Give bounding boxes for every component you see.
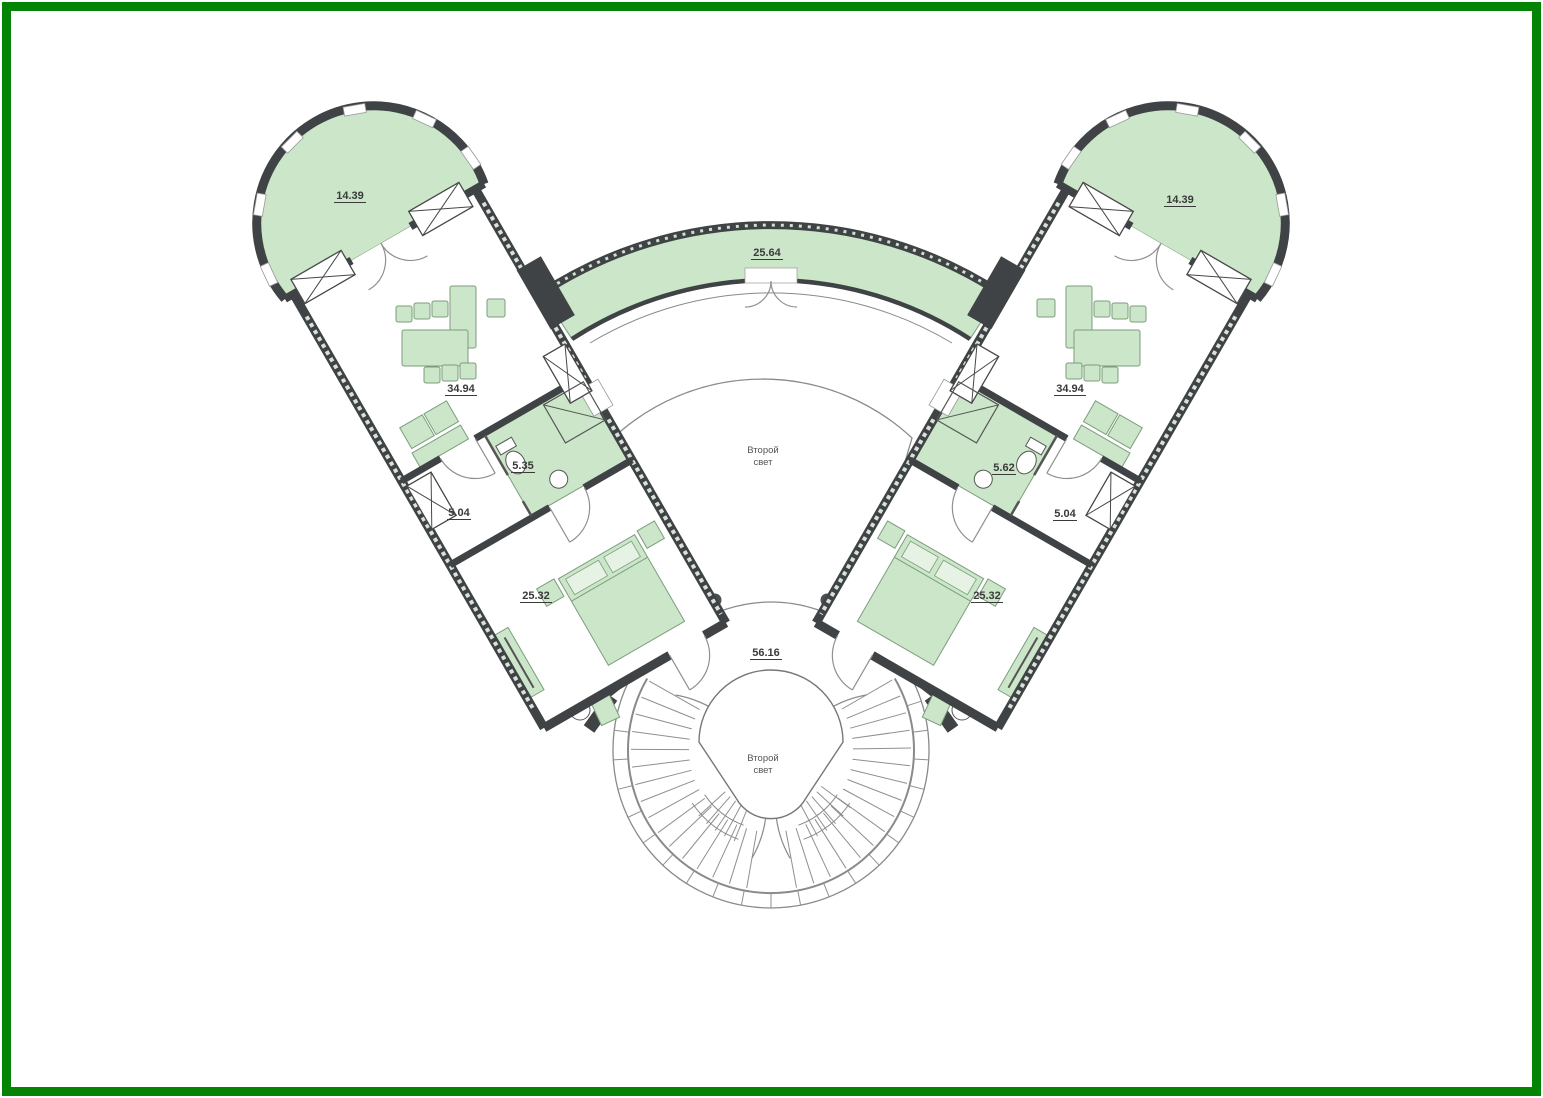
dining-table [402, 330, 468, 366]
area-label-bath-left: 5.35 [512, 460, 533, 472]
chair [460, 363, 476, 379]
chair [487, 299, 505, 317]
chair [442, 365, 458, 381]
chair [424, 367, 440, 383]
atrium-caption-line2: свет [753, 457, 773, 468]
balcony [542, 225, 1000, 339]
chair [1066, 363, 1082, 379]
chair [1102, 367, 1118, 383]
chair [432, 301, 448, 317]
void-caption-line2: свет [753, 765, 773, 776]
area-label-living-right: 34.94 [1056, 383, 1084, 395]
area-label-hall-left: 5.04 [448, 507, 470, 519]
chair [1112, 303, 1128, 319]
curl-arc [692, 803, 738, 839]
area-label-tower-right: 14.39 [1166, 194, 1194, 206]
area-label-living-left: 34.94 [447, 383, 475, 395]
balcony-door-recess [745, 268, 797, 283]
chair [1084, 365, 1100, 381]
area-label-balcony: 25.64 [753, 247, 781, 259]
area-label-stair-landing: 56.16 [752, 647, 780, 659]
chair [1130, 306, 1146, 322]
left-wing [209, 57, 766, 771]
area-label-bedroom-left: 25.32 [522, 590, 550, 602]
stair-hall [570, 645, 972, 908]
chair [396, 306, 412, 322]
dining-table [1074, 330, 1140, 366]
chair [1037, 299, 1055, 317]
atrium-caption-line1: Второй [747, 445, 778, 456]
chair [1094, 301, 1110, 317]
area-label-bath-right: 5.62 [993, 462, 1014, 474]
page: { "frame": { "border_color": "#048404", … [0, 0, 1543, 1098]
right-wing [776, 57, 1333, 771]
floor-plan: 14.39 14.39 25.64 34.94 34.94 5.35 5.62 … [0, 0, 1543, 1098]
void-caption-line1: Второй [747, 753, 778, 764]
area-label-hall-right: 5.04 [1054, 508, 1076, 520]
chair [414, 303, 430, 319]
area-label-tower-left: 14.39 [336, 190, 364, 202]
area-label-bedroom-right: 25.32 [973, 590, 1001, 602]
